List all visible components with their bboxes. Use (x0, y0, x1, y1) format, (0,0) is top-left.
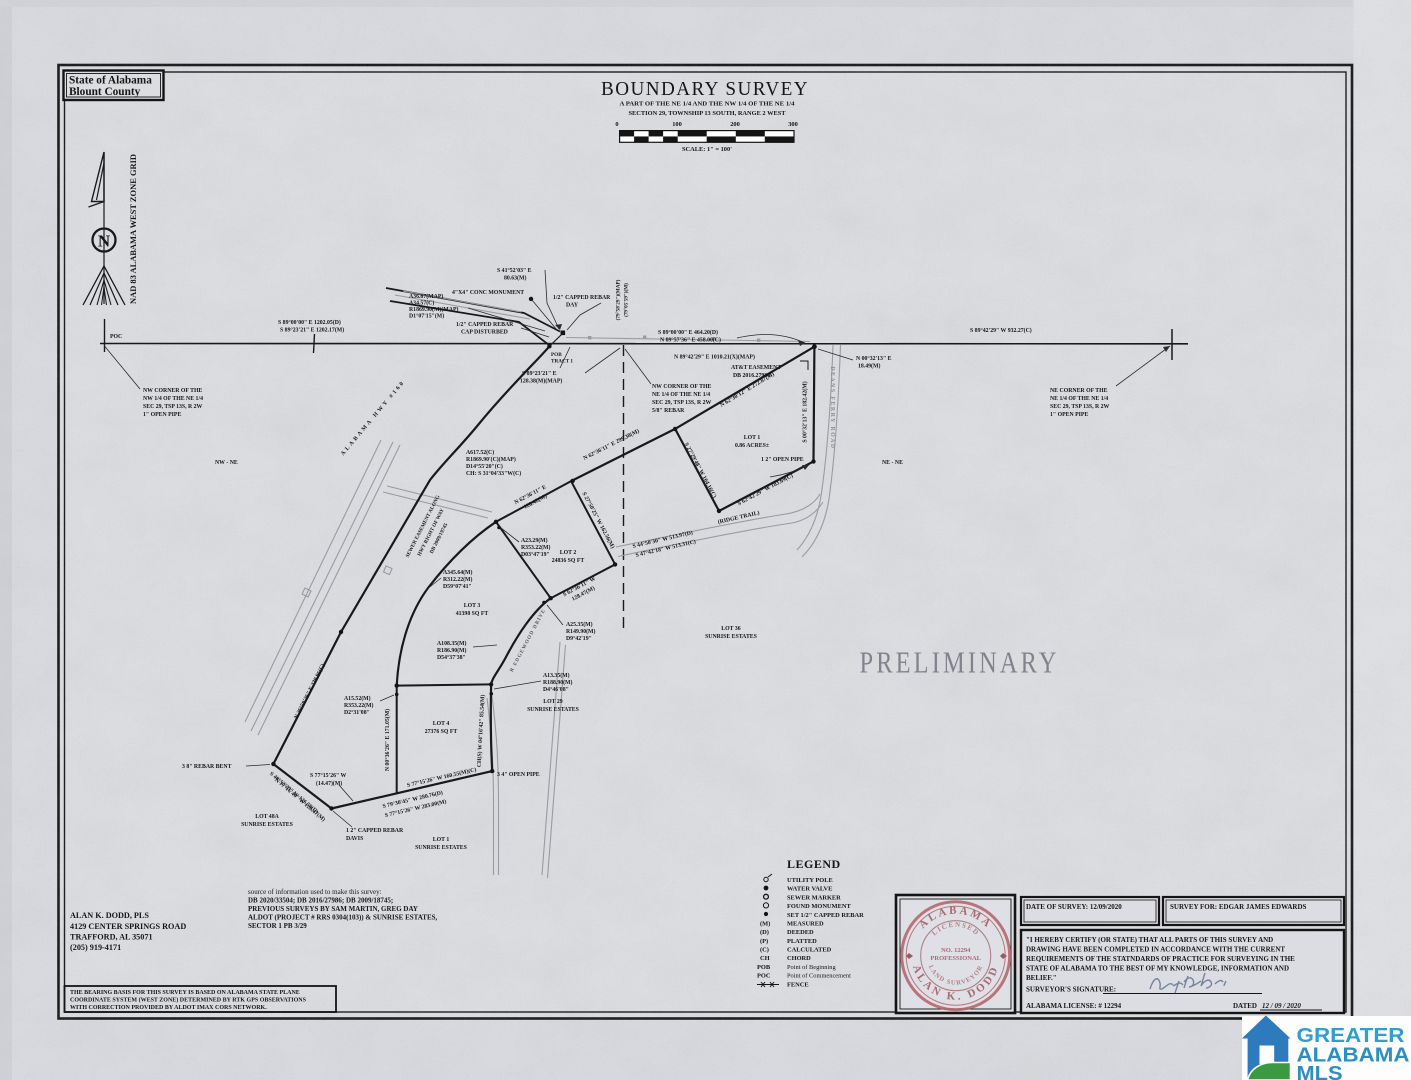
svg-text:5/8" REBAR: 5/8" REBAR (652, 408, 685, 414)
svg-text:LOT 4: LOT 4 (433, 721, 450, 727)
svg-text:SET 1/2" CAPPED REBAR: SET 1/2" CAPPED REBAR (787, 912, 864, 919)
svg-text:12 / 09 / 2020: 12 / 09 / 2020 (1262, 1002, 1301, 1010)
svg-text:SUNRISE ESTATES: SUNRISE ESTATES (241, 822, 293, 828)
svg-text:41398 SQ FT: 41398 SQ FT (456, 611, 489, 617)
svg-text:(D): (D) (760, 929, 769, 936)
svg-text:UTILITY POLE: UTILITY POLE (787, 877, 833, 884)
svg-text:Point of Beginning: Point of Beginning (787, 964, 836, 971)
svg-text:27376 SQ FT: 27376 SQ FT (425, 729, 458, 735)
svg-text:TRACT 1: TRACT 1 (551, 359, 573, 365)
svg-text:REQUIREMENTS OF THE STATNDARDS: REQUIREMENTS OF THE STATNDARDS OF PRACTI… (1026, 955, 1295, 963)
svg-text:DAVIS: DAVIS (346, 836, 363, 842)
svg-text:CHORD: CHORD (787, 955, 811, 962)
svg-text:AT&T EASEMENT: AT&T EASEMENT (731, 365, 781, 371)
svg-text:300: 300 (788, 121, 798, 128)
svg-text:N 00°36'26" E 171.05(M): N 00°36'26" E 171.05(M) (384, 709, 391, 771)
svg-text:A13.35(M): A13.35(M) (543, 672, 570, 679)
svg-text:DAY: DAY (566, 303, 579, 309)
svg-text:D59°07'41": D59°07'41" (443, 583, 472, 590)
svg-text:(79°58'29")(MAP): (79°58'29")(MAP) (615, 279, 622, 320)
svg-text:PROFESSIONAL: PROFESSIONAL (930, 955, 981, 962)
svg-text:D54°37'38": D54°37'38" (437, 654, 466, 661)
svg-text:SEC 29, TSP 13S, R 2W: SEC 29, TSP 13S, R 2W (652, 400, 712, 406)
svg-text:NW CORNER OF THE: NW CORNER OF THE (143, 388, 202, 394)
svg-text:100: 100 (672, 121, 682, 128)
svg-text:LOT 1: LOT 1 (433, 837, 450, 843)
svg-text:LOT 3: LOT 3 (464, 603, 481, 609)
svg-text:R186.90(M): R186.90(M) (437, 647, 467, 654)
svg-text:128.38(M)(MAP): 128.38(M)(MAP) (520, 378, 562, 385)
svg-text:R1869.90(M)(MAP): R1869.90(M)(MAP) (409, 306, 458, 313)
svg-text:A25.35(M): A25.35(M) (566, 621, 593, 628)
svg-text:A108.35(M): A108.35(M) (437, 640, 467, 647)
svg-text:D1°07'15"(M): D1°07'15"(M) (409, 313, 444, 320)
svg-text:LOT 29: LOT 29 (543, 699, 562, 705)
svg-text:0: 0 (615, 121, 618, 128)
svg-text:D14°55'20"(C): D14°55'20"(C) (466, 463, 503, 470)
svg-text:SEWER MARKER: SEWER MARKER (787, 894, 841, 901)
svg-text:S 89°23'21" E 1202.17(M): S 89°23'21" E 1202.17(M) (280, 327, 344, 334)
svg-text:N 89°42'29" E 1010.21(X)(MAP): N 89°42'29" E 1010.21(X)(MAP) (674, 354, 755, 361)
svg-text:1 2" CAPPED REBAR: 1 2" CAPPED REBAR (346, 828, 404, 834)
svg-text:NE CORNER OF THE: NE CORNER OF THE (1050, 388, 1108, 394)
svg-text:NW - NE: NW - NE (215, 460, 238, 466)
svg-text:NW 1/4 OF THE NE 1/4: NW 1/4 OF THE NE 1/4 (143, 396, 203, 402)
svg-text:STATE OF ALABAMA TO THE BEST O: STATE OF ALABAMA TO THE BEST OF MY KNOWL… (1026, 965, 1289, 973)
svg-text:POB: POB (757, 964, 771, 971)
svg-text:D2°31'08": D2°31'08" (344, 709, 370, 716)
svg-text:PLATTED: PLATTED (787, 938, 817, 945)
svg-text:NE 1/4 OF THE NE 1/4: NE 1/4 OF THE NE 1/4 (652, 392, 710, 398)
svg-text:SCALE: 1" = 100': SCALE: 1" = 100' (682, 146, 732, 153)
svg-text:LOT 48A: LOT 48A (255, 814, 279, 820)
svg-text:ALABAMA LICENSE: # 12294: ALABAMA LICENSE: # 12294 (1026, 1002, 1122, 1010)
svg-text:D4°46'08": D4°46'08" (543, 686, 569, 693)
svg-text:18.49(M): 18.49(M) (858, 363, 880, 370)
svg-text:State of Alabama: State of Alabama (69, 75, 152, 87)
svg-text:SECTOR 1 PB 3/29: SECTOR 1 PB 3/29 (248, 922, 307, 930)
svg-text:(P): (P) (760, 938, 768, 945)
svg-text:SUNRISE ESTATES: SUNRISE ESTATES (527, 707, 579, 713)
svg-text:1" OPEN PIPE: 1" OPEN PIPE (143, 412, 181, 418)
svg-text:SEC 29, TSP 13S, R 2W: SEC 29, TSP 13S, R 2W (1050, 404, 1110, 410)
svg-text:S 41°52'03" E: S 41°52'03" E (497, 267, 532, 274)
svg-text:LOT 36: LOT 36 (721, 626, 740, 632)
svg-text:DATE OF SURVEY: 12/09/2020: DATE OF SURVEY: 12/09/2020 (1026, 903, 1122, 911)
svg-text:CH: S 31°04'33"W(C): CH: S 31°04'33"W(C) (466, 470, 521, 477)
svg-text:NE 1/4 OF THE NE 1/4: NE 1/4 OF THE NE 1/4 (1050, 396, 1108, 402)
svg-text:80.63(M): 80.63(M) (504, 275, 526, 282)
svg-text:ALDOT (PROJECT # RRS 0304(103): ALDOT (PROJECT # RRS 0304(103)) & SUNRIS… (248, 914, 438, 922)
svg-text:MEASURED: MEASURED (787, 920, 824, 927)
svg-text:A345.64(M): A345.64(M) (443, 569, 473, 576)
svg-text:PREVIOUS SURVEYS BY SAM MARTIN: PREVIOUS SURVEYS BY SAM MARTIN, GREG DAY (248, 905, 418, 913)
svg-text:S 89°00'00" E 1202.05(D): S 89°00'00" E 1202.05(D) (278, 319, 341, 326)
svg-text:ALAN K. DODD, PLS: ALAN K. DODD, PLS (70, 911, 149, 920)
svg-text:DRAWING HAVE BEEN COMPLETED IN: DRAWING HAVE BEEN COMPLETED IN ACCORDANC… (1026, 946, 1285, 954)
svg-text:(C): (C) (760, 947, 769, 954)
svg-text:WITH CORRECTION PROVIDED BY AL: WITH CORRECTION PROVIDED BY ALDOT IMAX C… (70, 1005, 267, 1011)
svg-text:POC: POC (110, 334, 122, 340)
svg-text:SURVEY FOR: EDGAR JAMES EDWARD: SURVEY FOR: EDGAR JAMES EDWARDS (1170, 903, 1307, 911)
svg-text:1 2" OPEN PIPE: 1 2" OPEN PIPE (761, 457, 804, 463)
svg-text:TRAFFORD, AL 35071: TRAFFORD, AL 35071 (70, 933, 153, 942)
svg-text:S 89°42'29" W 932.27(C): S 89°42'29" W 932.27(C) (970, 327, 1032, 334)
svg-text:1" OPEN PIPE: 1" OPEN PIPE (1050, 412, 1088, 418)
svg-text:COORDINATE SYSTEM (WEST ZONE): COORDINATE SYSTEM (WEST ZONE) DETERMINED… (70, 997, 307, 1004)
svg-text:A23.29(M): A23.29(M) (521, 537, 548, 544)
svg-text:FENCE: FENCE (787, 981, 809, 988)
svg-text:N 89°57'36" E 458.00(C): N 89°57'36" E 458.00(C) (660, 337, 721, 344)
svg-text:N 00°32'13" E: N 00°32'13" E (856, 355, 892, 362)
svg-text:N: N (98, 232, 111, 251)
svg-text:D9°42'19": D9°42'19" (566, 635, 592, 642)
svg-text:4129 CENTER SPRINGS ROAD: 4129 CENTER SPRINGS ROAD (70, 922, 186, 931)
svg-text:DB 2020/33504; DB 2016/27986;: DB 2020/33504; DB 2016/27986; DB 2009/18… (248, 897, 393, 905)
svg-text:R312.22(M): R312.22(M) (443, 576, 473, 583)
svg-text:LOT 1: LOT 1 (744, 435, 761, 441)
svg-text:R149.90(M): R149.90(M) (566, 628, 596, 635)
svg-text:MLS: MLS (1297, 1063, 1343, 1080)
svg-text:POB: POB (551, 352, 562, 358)
svg-text:Point of Commencement: Point of Commencement (787, 973, 851, 980)
svg-text:200: 200 (730, 121, 740, 128)
svg-text:4"X4" CONC MONUMENT: 4"X4" CONC MONUMENT (452, 290, 524, 296)
svg-text:LEGEND: LEGEND (787, 857, 841, 871)
svg-text:BOUNDARY SURVEY: BOUNDARY SURVEY (601, 78, 809, 100)
svg-text:source of information used to: source of information used to make this … (248, 888, 382, 896)
svg-text:FOUND MONUMENT: FOUND MONUMENT (787, 903, 851, 910)
svg-text:PRELIMINARY: PRELIMINARY (860, 645, 1060, 680)
svg-text:3 8" REBAR BENT: 3 8" REBAR BENT (182, 764, 232, 770)
svg-text:A36.67(MAP): A36.67(MAP) (409, 293, 443, 300)
svg-text:A34.57(C): A34.57(C) (409, 300, 434, 307)
svg-text:BELIEF.": BELIEF." (1026, 974, 1057, 982)
svg-text:Blount County: Blount County (69, 86, 141, 98)
svg-text:NAD 83 ALABAMA WEST ZONE GRID: NAD 83 ALABAMA WEST ZONE GRID (129, 154, 138, 304)
svg-text:S 77°15'26" W: S 77°15'26" W (310, 772, 347, 779)
svg-text:R353.22(M): R353.22(M) (344, 702, 374, 709)
svg-text:24836 SQ FT: 24836 SQ FT (552, 558, 585, 564)
svg-text:A PART OF THE NE 1/4 AND THE N: A PART OF THE NE 1/4 AND THE NW 1/4 OF T… (620, 101, 796, 108)
svg-text:SECTION 29, TOWNSHIP 13 SOUTH,: SECTION 29, TOWNSHIP 13 SOUTH, RANGE 2 W… (629, 110, 787, 117)
svg-text:1/2" CAPPED REBAR: 1/2" CAPPED REBAR (553, 295, 611, 301)
svg-text:DATED: DATED (1233, 1002, 1257, 1010)
svg-text:0.86 ACRES±: 0.86 ACRES± (735, 443, 769, 449)
svg-text:R1869.90'(C)(MAP): R1869.90'(C)(MAP) (466, 456, 516, 463)
svg-text:SURVEYOR'S SIGNATURE:: SURVEYOR'S SIGNATURE: (1026, 986, 1116, 994)
svg-text:SUNRISE ESTATES: SUNRISE ESTATES (705, 634, 757, 640)
svg-text:(M): (M) (760, 920, 770, 927)
svg-text:SUNRISE ESTATES: SUNRISE ESTATES (415, 845, 467, 851)
svg-text:R188.90(M): R188.90(M) (543, 679, 573, 686)
svg-text:(205) 919-4171: (205) 919-4171 (70, 943, 121, 952)
svg-text:CH: CH (760, 955, 770, 962)
svg-text:S 89°23'21" E: S 89°23'21" E (522, 370, 557, 377)
svg-text:D03°47'19": D03°47'19" (521, 551, 550, 558)
svg-text:WATER VALVE: WATER VALVE (787, 886, 832, 893)
svg-text:CAP DISTURBED: CAP DISTURBED (461, 330, 508, 336)
svg-text:S 00°32'13" E 182.42(M): S 00°32'13" E 182.42(M) (802, 381, 809, 442)
svg-text:A15.52(M): A15.52(M) (344, 695, 371, 702)
svg-text:NO. 12294: NO. 12294 (941, 947, 971, 954)
svg-text:DEANS FERRY ROAD: DEANS FERRY ROAD (829, 366, 835, 449)
svg-text:THE BEARING BASIS FOR THIS SUR: THE BEARING BASIS FOR THIS SURVEY IS BAS… (70, 990, 300, 996)
svg-text:R353.22(M): R353.22(M) (521, 544, 551, 551)
svg-text:NE - NE: NE - NE (882, 460, 903, 466)
svg-text:SEC 29, TSP 13S, R 2W: SEC 29, TSP 13S, R 2W (143, 404, 203, 410)
svg-text:POC: POC (757, 973, 771, 980)
svg-text:1/2" CAPPED REBAR: 1/2" CAPPED REBAR (456, 322, 514, 328)
svg-text:"I HEREBY CERTIFY (OR STATE) T: "I HEREBY CERTIFY (OR STATE) THAT ALL PA… (1026, 936, 1273, 944)
svg-text:A617.52(C): A617.52(C) (466, 449, 494, 456)
svg-text:LOT 2: LOT 2 (560, 550, 577, 556)
svg-text:(79°05'59")(M): (79°05'59")(M) (623, 283, 630, 317)
svg-text:(14.47)(M): (14.47)(M) (316, 780, 342, 787)
svg-text:NW CORNER OF THE: NW CORNER OF THE (652, 384, 711, 390)
svg-text:3 4" OPEN PIPE: 3 4" OPEN PIPE (497, 772, 540, 778)
svg-text:DEEDED: DEEDED (787, 929, 814, 936)
svg-text:CALCULATED: CALCULATED (787, 947, 832, 954)
svg-text:S 89°00'00" E 464.20(D): S 89°00'00" E 464.20(D) (658, 329, 718, 336)
